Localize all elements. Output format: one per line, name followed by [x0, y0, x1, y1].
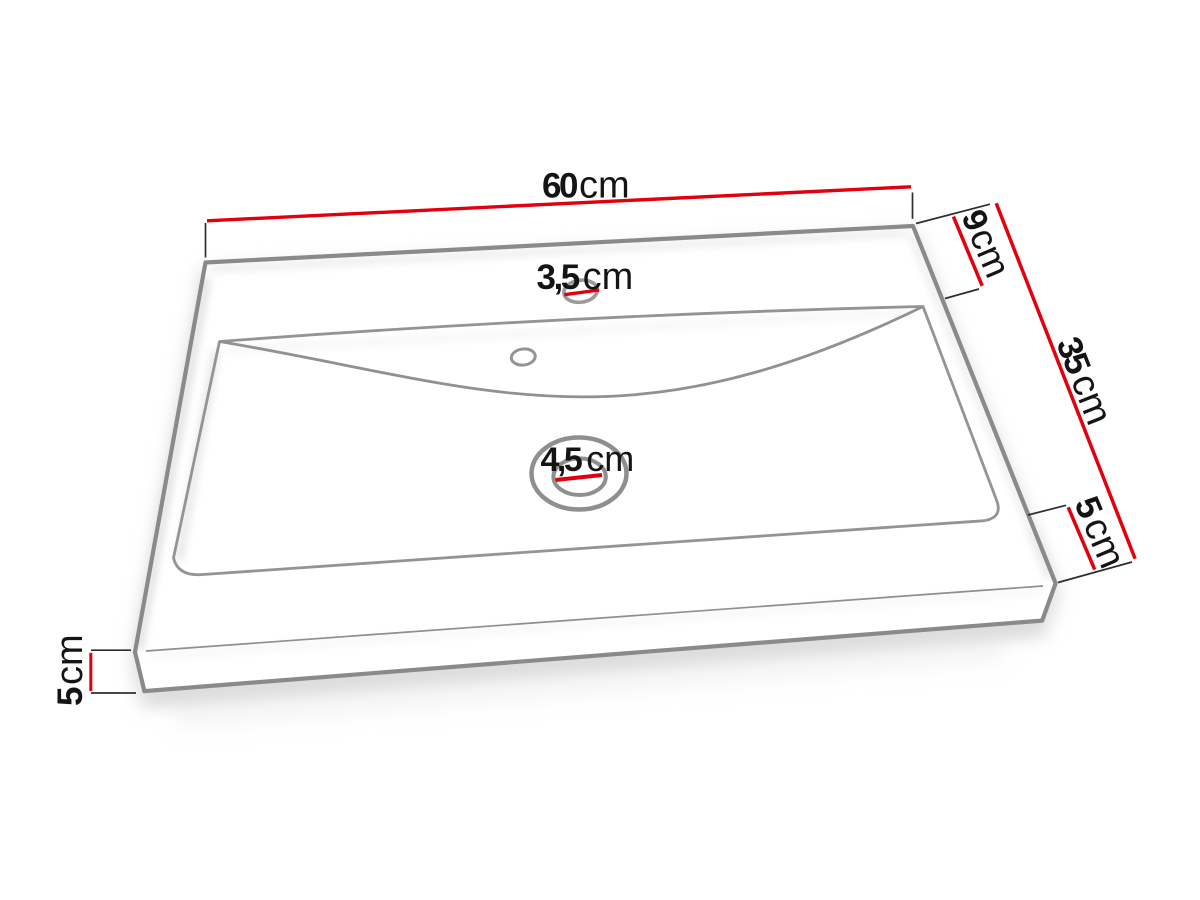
svg-text:35cm: 35cm — [1048, 331, 1120, 431]
svg-text:60cm: 60cm — [542, 165, 630, 207]
svg-text:3,5cm: 3,5cm — [537, 256, 634, 298]
svg-text:4,5cm: 4,5cm — [541, 438, 635, 479]
svg-text:5cm: 5cm — [49, 634, 91, 706]
svg-text:5cm: 5cm — [1066, 490, 1133, 574]
